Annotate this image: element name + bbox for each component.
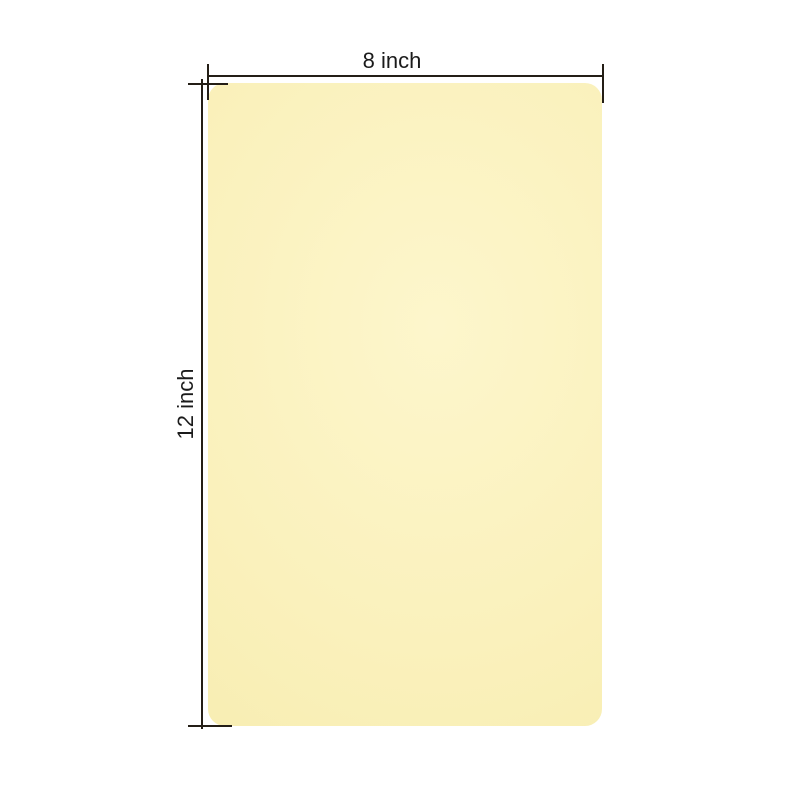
product-dimension-figure: 8 inch 12 inch <box>0 0 800 800</box>
height-dimension-label: 12 inch <box>175 369 197 440</box>
yellow-pad <box>208 83 602 726</box>
width-dimension-label: 8 inch <box>363 50 422 72</box>
